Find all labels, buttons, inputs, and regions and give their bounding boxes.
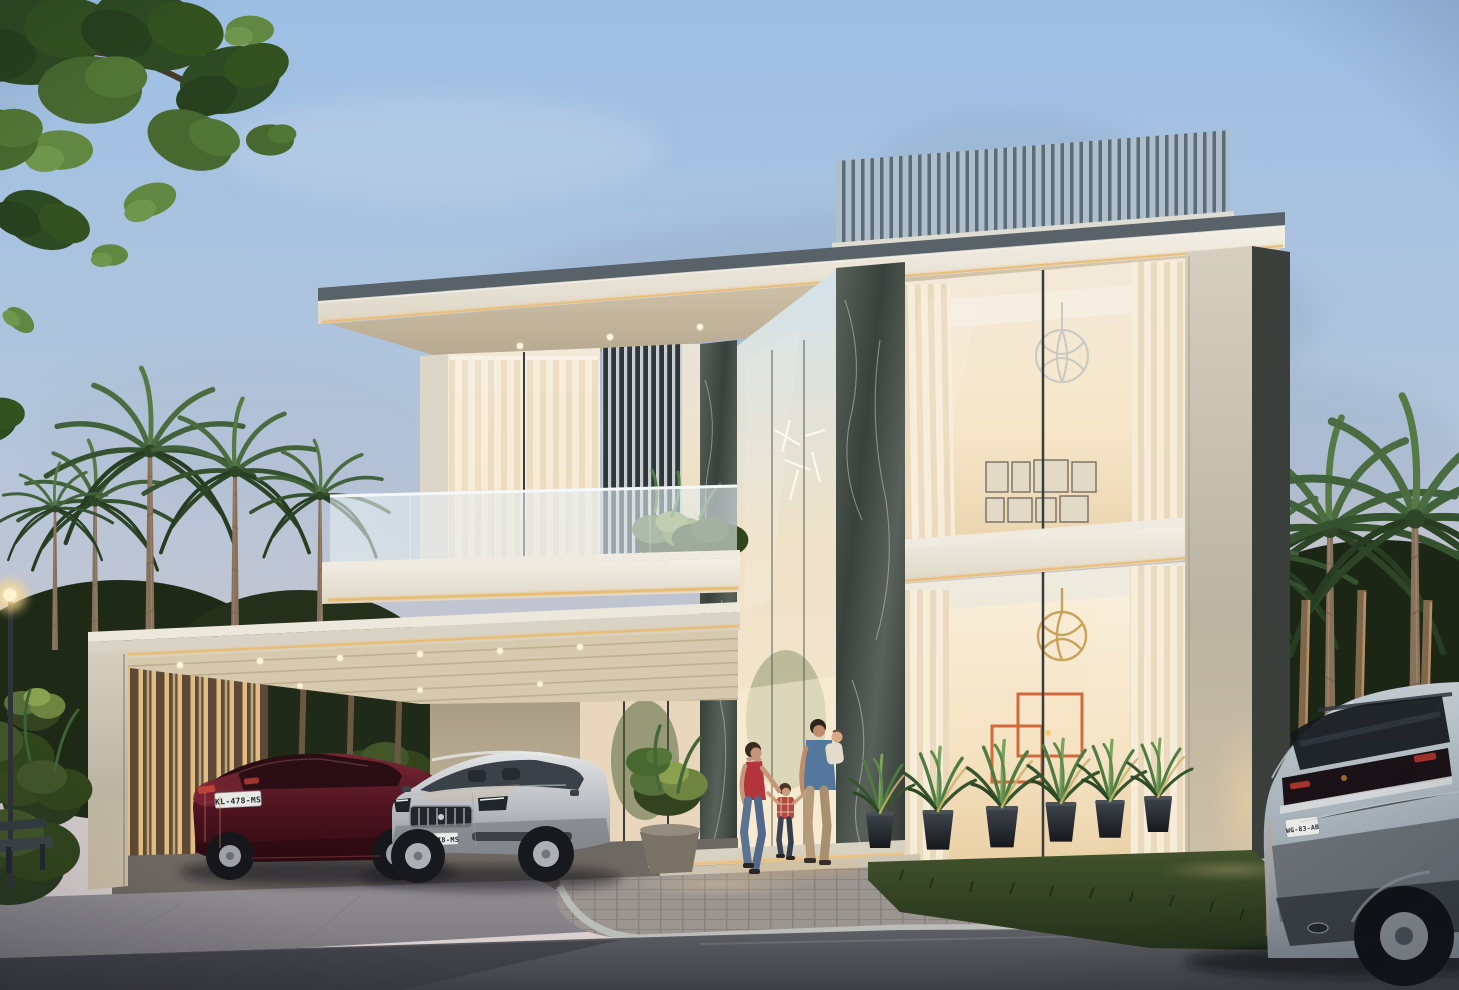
vignette-overlay (0, 0, 1459, 990)
villa-render: KL-478-MS KL-478-MS (0, 0, 1459, 990)
